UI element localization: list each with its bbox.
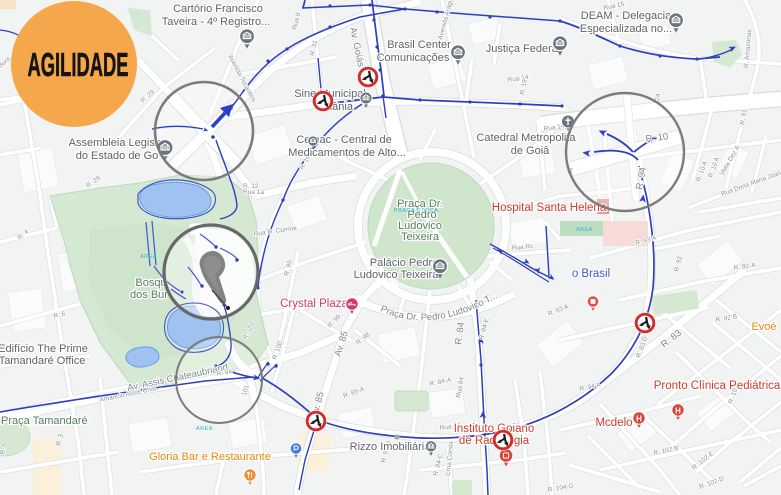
svg-text:do Estado de Go: do Estado de Go — [76, 150, 159, 162]
svg-text:Instituto Goiano: Instituto Goiano — [454, 423, 535, 435]
svg-text:Cartório Francisco: Cartório Francisco — [173, 3, 263, 15]
svg-text:PRAÇA CÍVICA: PRAÇA CÍVICA — [394, 207, 439, 214]
svg-text:Palácio Pedro: Palácio Pedro — [370, 257, 439, 269]
svg-text:Rizzo Imobiliária: Rizzo Imobiliária — [350, 441, 432, 453]
svg-text:Comunicações: Comunicações — [377, 52, 450, 64]
svg-text:Gloria Bar e Restaurante: Gloria Bar e Restaurante — [149, 451, 271, 463]
svg-text:Hospital Santa Helena: Hospital Santa Helena — [492, 202, 607, 214]
svg-text:Tamandaré Office: Tamandaré Office — [0, 355, 85, 367]
svg-text:AREA: AREA — [576, 227, 593, 233]
svg-text:AGILIDADE: AGILIDADE — [28, 46, 129, 83]
svg-text:AREA: AREA — [140, 254, 157, 260]
svg-text:DEAM - Delegacia: DEAM - Delegacia — [581, 10, 672, 22]
svg-text:Assembleia Legisla: Assembleia Legisla — [69, 137, 165, 149]
svg-text:Ludovico Teixeira: Ludovico Teixeira — [354, 269, 440, 281]
svg-text:dos Bur: dos Bur — [130, 289, 168, 301]
svg-text:Mcdelo: Mcdelo — [595, 417, 632, 429]
svg-text:Especializada no...: Especializada no... — [580, 23, 672, 35]
svg-text:Teixeira: Teixeira — [401, 231, 440, 243]
svg-text:Edifício The Prime: Edifício The Prime — [0, 343, 88, 355]
svg-text:Praça Tamandaré: Praça Tamandaré — [1, 415, 88, 427]
svg-text:Justiça Federal: Justiça Federal — [486, 43, 561, 55]
svg-text:Pronto Clínica Pediátrica: Pronto Clínica Pediátrica — [654, 380, 781, 392]
svg-text:AREA: AREA — [196, 426, 213, 432]
svg-text:de Goiâ: de Goiâ — [511, 145, 550, 157]
svg-text:Catedral Metropolita: Catedral Metropolita — [476, 132, 576, 144]
svg-text:Medicamentos de Alto...: Medicamentos de Alto... — [288, 147, 405, 159]
svg-text:Bosqu: Bosqu — [135, 277, 166, 289]
svg-text:Rua 1a: Rua 1a — [243, 189, 264, 196]
svg-text:Evoé: Evoé — [751, 321, 776, 333]
svg-text:Brasil Center: Brasil Center — [387, 39, 451, 51]
svg-text:Taveira - 4º Registro...: Taveira - 4º Registro... — [162, 16, 271, 28]
svg-text:o Brasil: o Brasil — [572, 268, 610, 280]
svg-text:Crystal Plaza: Crystal Plaza — [280, 298, 348, 310]
